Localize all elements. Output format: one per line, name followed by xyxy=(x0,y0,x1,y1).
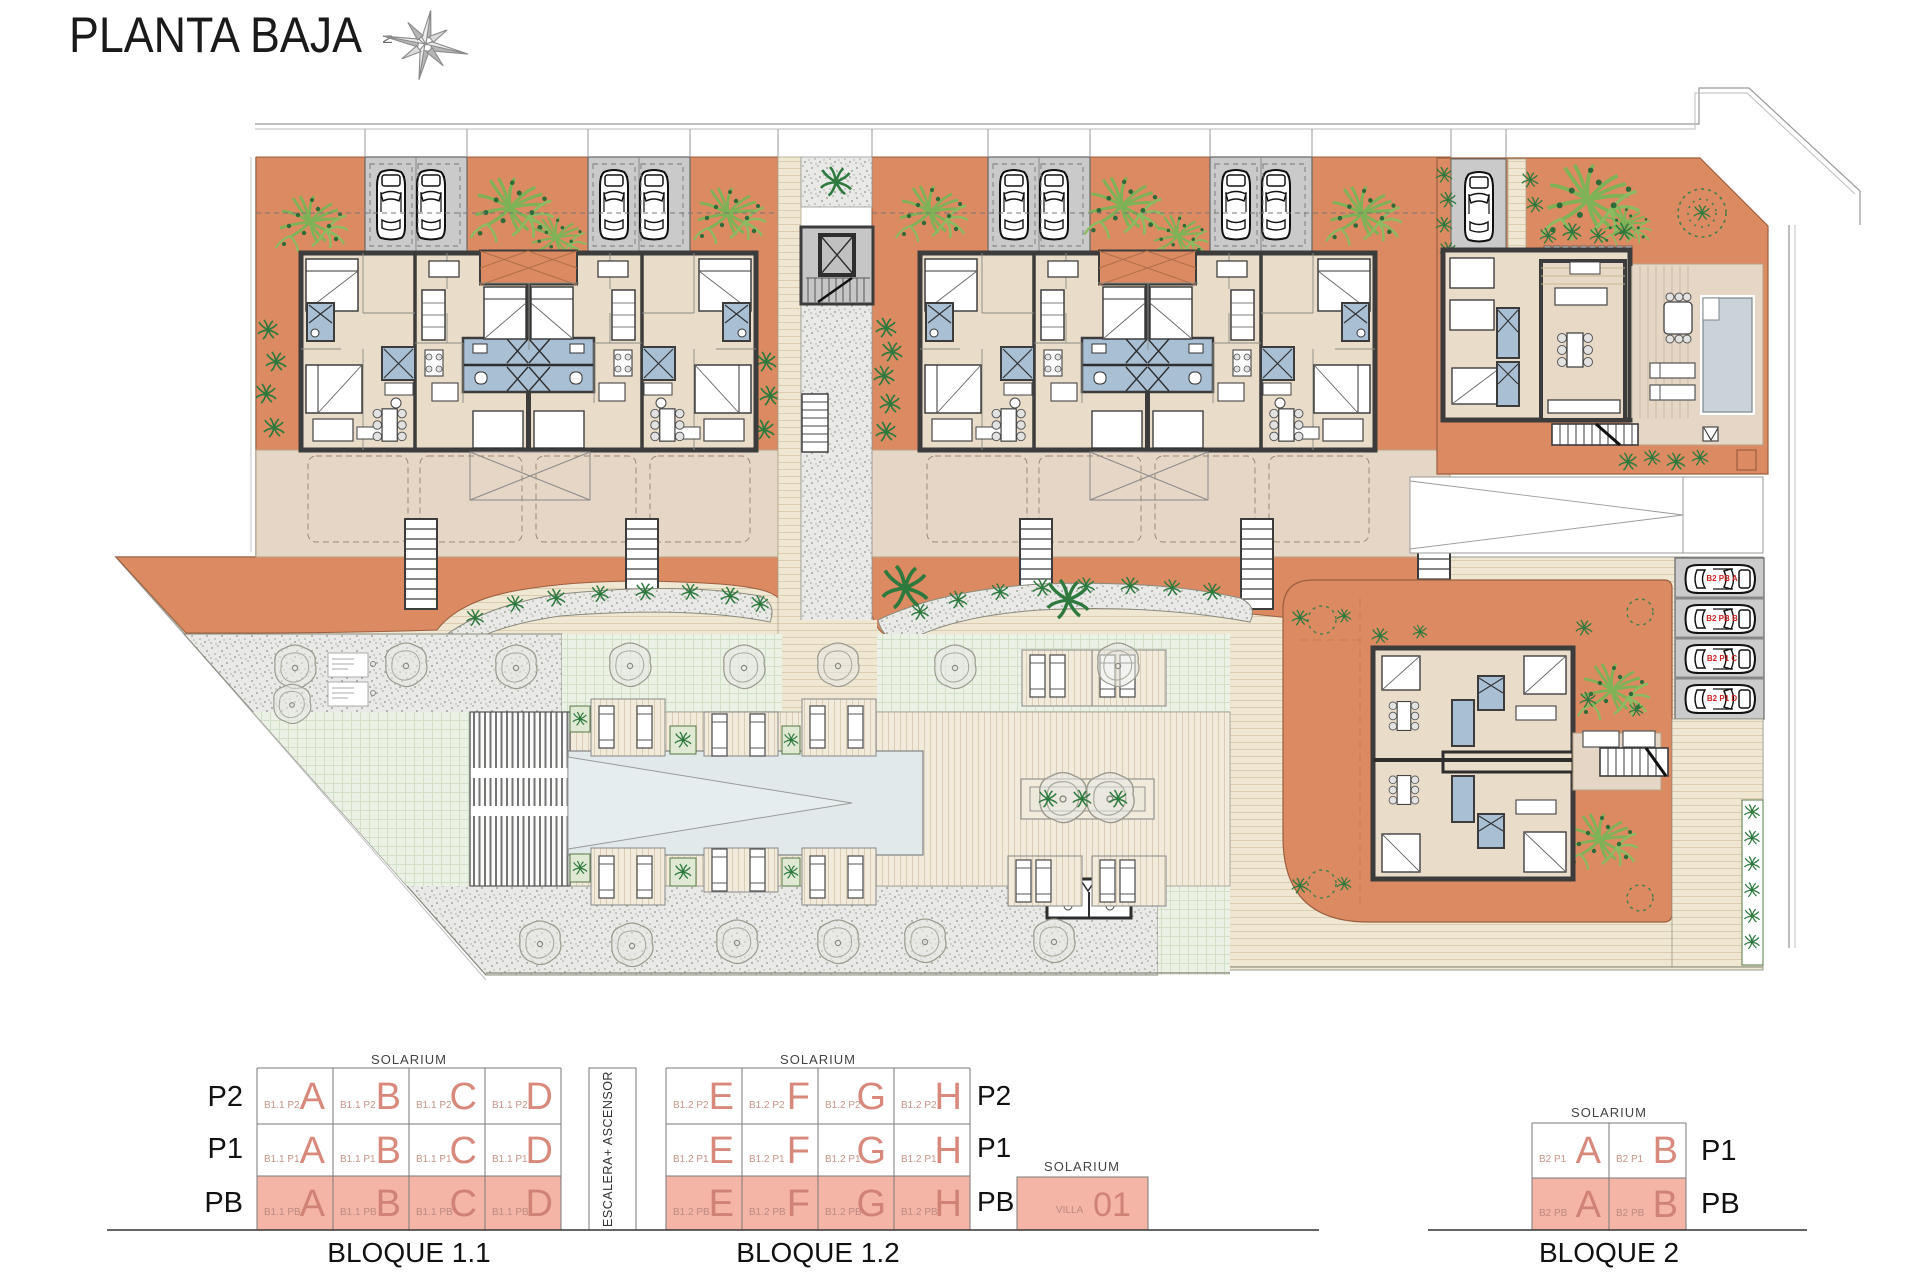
svg-text:A: A xyxy=(300,1183,326,1225)
svg-text:B2 PB: B2 PB xyxy=(1539,1208,1568,1219)
svg-text:B: B xyxy=(1653,1184,1678,1226)
svg-text:G: G xyxy=(856,1130,886,1172)
svg-text:B2 PB A: B2 PB A xyxy=(1706,574,1737,583)
svg-text:B1.2 P1: B1.2 P1 xyxy=(901,1154,937,1165)
svg-text:B: B xyxy=(1653,1130,1678,1172)
svg-text:E: E xyxy=(709,1076,734,1118)
svg-text:BLOQUE 2: BLOQUE 2 xyxy=(1539,1237,1679,1268)
svg-text:D: D xyxy=(526,1076,553,1118)
svg-text:B1.1 P2: B1.1 P2 xyxy=(340,1100,376,1111)
svg-text:E: E xyxy=(709,1130,734,1172)
svg-text:F: F xyxy=(787,1130,810,1172)
svg-text:B1.1 P1: B1.1 P1 xyxy=(340,1154,376,1165)
svg-text:D: D xyxy=(526,1183,553,1225)
svg-text:PB: PB xyxy=(977,1186,1014,1217)
svg-text:B1.2 P2: B1.2 P2 xyxy=(749,1100,785,1111)
svg-text:SOLARIUM: SOLARIUM xyxy=(1044,1159,1120,1174)
svg-text:B2 P1 D: B2 P1 D xyxy=(1707,694,1737,703)
svg-text:B2 P1: B2 P1 xyxy=(1539,1154,1567,1165)
svg-text:A: A xyxy=(300,1076,326,1118)
svg-text:BLOQUE 1.2: BLOQUE 1.2 xyxy=(736,1237,899,1268)
svg-text:B1.1 P1: B1.1 P1 xyxy=(416,1154,452,1165)
svg-text:B1.1 P2: B1.1 P2 xyxy=(416,1100,452,1111)
svg-text:C: C xyxy=(450,1076,477,1118)
svg-text:B1.2 PB: B1.2 PB xyxy=(673,1207,710,1218)
svg-text:PLANTA BAJA: PLANTA BAJA xyxy=(69,7,363,63)
svg-text:ESCALERA+ ASCENSOR: ESCALERA+ ASCENSOR xyxy=(601,1071,615,1227)
svg-text:SOLARIUM: SOLARIUM xyxy=(1571,1105,1647,1120)
svg-text:B1.2 PB: B1.2 PB xyxy=(749,1207,786,1218)
svg-text:B1.1 P2: B1.1 P2 xyxy=(264,1100,300,1111)
svg-text:B: B xyxy=(376,1076,401,1118)
svg-text:D: D xyxy=(526,1130,553,1172)
svg-text:B1.2 P2: B1.2 P2 xyxy=(901,1100,937,1111)
svg-text:H: H xyxy=(935,1130,962,1172)
svg-text:H: H xyxy=(935,1183,962,1225)
svg-text:B1.2 P1: B1.2 P1 xyxy=(749,1154,785,1165)
svg-text:P1: P1 xyxy=(1701,1135,1736,1167)
svg-text:B1.1 P2: B1.1 P2 xyxy=(492,1100,528,1111)
svg-text:E: E xyxy=(709,1183,734,1225)
svg-text:B1.2 P1: B1.2 P1 xyxy=(673,1154,709,1165)
svg-text:B: B xyxy=(376,1130,401,1172)
svg-text:SOLARIUM: SOLARIUM xyxy=(780,1052,856,1067)
svg-text:B1.2 PB: B1.2 PB xyxy=(901,1207,938,1218)
svg-text:B: B xyxy=(376,1183,401,1225)
svg-text:A: A xyxy=(1576,1184,1602,1226)
svg-text:C: C xyxy=(450,1183,477,1225)
svg-text:B2 P1: B2 P1 xyxy=(1616,1154,1644,1165)
svg-text:01: 01 xyxy=(1093,1186,1131,1224)
svg-text:B1.2 P2: B1.2 P2 xyxy=(673,1100,709,1111)
svg-text:H: H xyxy=(935,1076,962,1118)
svg-text:B1.1 PB: B1.1 PB xyxy=(416,1207,453,1218)
svg-text:P2: P2 xyxy=(208,1081,243,1113)
svg-text:BLOQUE 1.1: BLOQUE 1.1 xyxy=(327,1237,490,1268)
svg-text:SOLARIUM: SOLARIUM xyxy=(371,1052,447,1067)
svg-text:B2 P1 C: B2 P1 C xyxy=(1707,654,1737,663)
svg-text:P2: P2 xyxy=(977,1080,1011,1111)
svg-text:A: A xyxy=(1576,1130,1602,1172)
svg-text:VILLA: VILLA xyxy=(1056,1205,1084,1216)
svg-text:B1.1 P1: B1.1 P1 xyxy=(492,1154,528,1165)
svg-text:F: F xyxy=(787,1183,810,1225)
svg-text:B1.1 PB: B1.1 PB xyxy=(340,1207,377,1218)
svg-text:B1.1 PB: B1.1 PB xyxy=(492,1207,529,1218)
svg-text:PB: PB xyxy=(204,1187,243,1219)
svg-text:P1: P1 xyxy=(208,1133,243,1165)
svg-text:B2 PB B: B2 PB B xyxy=(1706,614,1738,623)
svg-text:C: C xyxy=(450,1130,477,1172)
svg-text:G: G xyxy=(856,1076,886,1118)
svg-text:A: A xyxy=(300,1130,326,1172)
svg-text:B1.1 P1: B1.1 P1 xyxy=(264,1154,300,1165)
svg-text:B2 PB: B2 PB xyxy=(1616,1208,1645,1219)
svg-text:P1: P1 xyxy=(977,1132,1011,1163)
svg-text:F: F xyxy=(787,1076,810,1118)
svg-text:PB: PB xyxy=(1701,1188,1740,1220)
svg-text:B1.1 PB: B1.1 PB xyxy=(264,1207,301,1218)
svg-text:G: G xyxy=(856,1183,886,1225)
